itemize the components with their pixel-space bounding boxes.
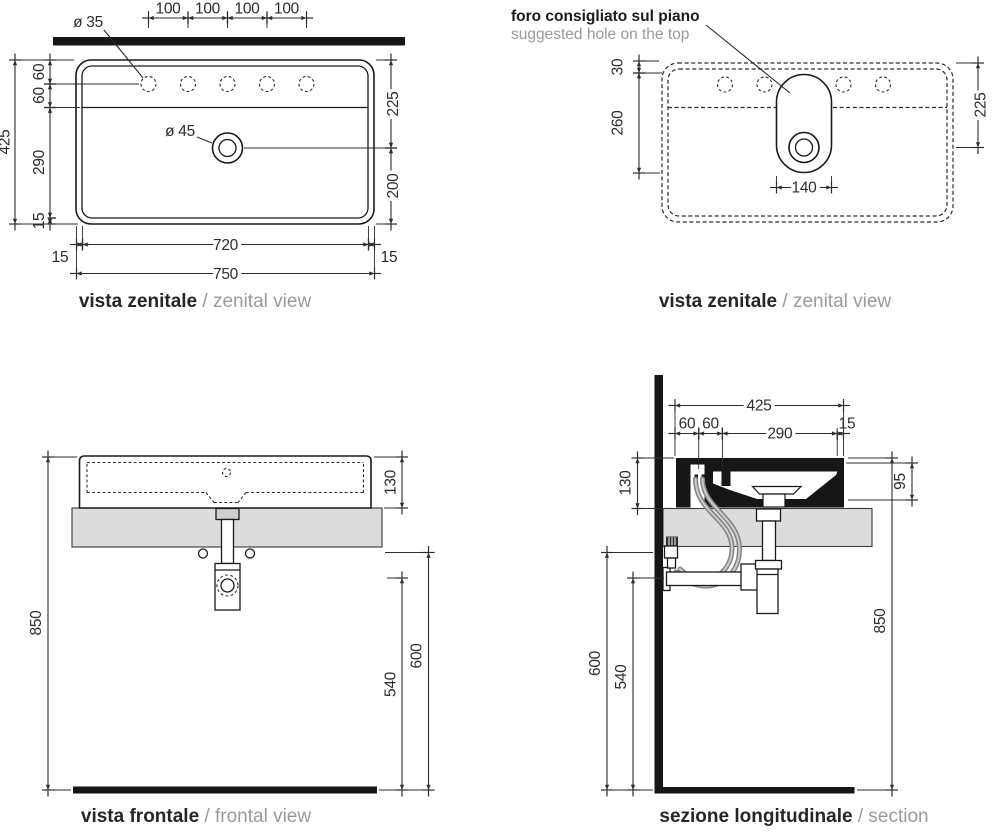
note-english: suggested hole on the top <box>511 26 689 43</box>
view-title-zenital-right: vista zenitale / zenital view <box>659 291 892 312</box>
dim-label-30: 30 <box>610 58 627 75</box>
label-drain-diameter: ø 45 <box>165 123 195 140</box>
view-title-section: sezione longitudinale / section <box>659 806 928 827</box>
valve-outlet <box>668 558 676 568</box>
fixing-bolt-left <box>199 549 208 558</box>
dim-left-chain: 30 260 <box>610 58 640 173</box>
view-title-zenital-left: vista zenitale / zenital view <box>79 291 312 312</box>
technical-drawing: ø 35 ø 45 100 100 100 100 425 60 60 290 … <box>0 0 992 836</box>
bottle-trap-body <box>757 569 778 614</box>
dim-right: 225 <box>973 63 990 148</box>
dim-label-15-left: 15 <box>52 249 69 266</box>
dim-label-95: 95 <box>892 473 909 490</box>
dim-bowl-depth-95: 95 <box>892 463 912 500</box>
dim-label-100-1: 100 <box>156 1 182 18</box>
dim-label-140: 140 <box>792 180 818 197</box>
angle-valve <box>665 537 679 569</box>
dim-label-425: 425 <box>0 130 14 155</box>
dim-basin-130: 130 <box>383 457 403 508</box>
floor-bar <box>655 787 855 794</box>
valve-body <box>665 546 678 558</box>
fixing-bolt-right <box>246 549 255 558</box>
drain-flange <box>216 509 239 520</box>
dim-bottom-widths: 720 750 15 15 <box>52 237 398 283</box>
dim-slot-width: 140 <box>777 180 832 197</box>
note-italian: foro consigliato sul piano <box>511 8 700 25</box>
view-zenital-left: ø 35 ø 45 100 100 100 100 425 60 60 290 … <box>0 1 405 313</box>
note-leader-line <box>706 25 790 93</box>
dim-label-540: 540 <box>383 671 400 697</box>
dim-label-540: 540 <box>613 664 630 690</box>
dim-drain-540: 540 <box>613 578 633 790</box>
wall-bar <box>655 375 664 794</box>
dim-top-425: 425 <box>675 398 844 415</box>
dim-label-750: 750 <box>213 266 239 283</box>
label-hole-diameter: ø 35 <box>73 14 103 31</box>
trap-outlet-circle <box>221 579 234 592</box>
drain-tailpipe <box>763 521 776 561</box>
dim-clearance-600: 600 <box>409 553 429 791</box>
view-zenital-right: foro consigliato sul piano suggested hol… <box>511 8 990 312</box>
view-title-frontal: vista frontale / frontal view <box>81 806 311 827</box>
dim-label-130: 130 <box>383 469 400 495</box>
dim-right-chain: 225 200 <box>385 60 402 224</box>
dim-clearance-600: 600 <box>587 553 607 791</box>
dim-label-60b: 60 <box>702 416 719 433</box>
drain-flange <box>757 509 781 521</box>
deck-step <box>722 472 731 487</box>
dim-label-60b: 60 <box>31 87 48 104</box>
faucet-hole-circle <box>718 77 733 92</box>
floor-bar <box>73 787 377 794</box>
drain-tailpipe <box>222 520 234 564</box>
dim-label-600: 600 <box>587 650 604 676</box>
dim-label-225: 225 <box>973 93 990 118</box>
dim-label-15: 15 <box>31 213 48 230</box>
popup-waste-cap <box>753 487 802 495</box>
dim-label-130: 130 <box>618 470 635 496</box>
dim-label-850: 850 <box>872 608 889 634</box>
dim-drain-540: 540 <box>383 578 403 790</box>
drain-inner-circle <box>796 139 813 156</box>
wall-bar <box>53 37 405 46</box>
dim-label-60a: 60 <box>679 416 696 433</box>
dim-label-100-4: 100 <box>274 1 300 18</box>
drain-hole <box>213 133 243 163</box>
dim-overall-depth: 425 <box>0 60 15 224</box>
view-frontal: 850 130 600 540 vista frontale / frontal… <box>28 456 435 827</box>
dim-height-850: 850 <box>28 457 48 790</box>
dim-label-225: 225 <box>385 92 402 117</box>
dim-label-15-right: 15 <box>381 249 398 266</box>
dim-label-290: 290 <box>767 426 793 443</box>
dim-label-200: 200 <box>385 173 402 199</box>
drain-hole <box>789 133 819 163</box>
dim-basin-130: 130 <box>618 458 638 509</box>
dim-label-60a: 60 <box>31 63 48 80</box>
wall-drain-pipe <box>667 572 742 586</box>
dim-top-chain: 60 60 290 15 <box>675 416 855 443</box>
dim-label-850: 850 <box>28 610 45 636</box>
basin-front-outline <box>80 456 372 508</box>
dim-label-15: 15 <box>839 416 856 433</box>
dim-label-290: 290 <box>31 149 48 175</box>
dim-label-100-2: 100 <box>195 1 221 18</box>
drain-inner-circle <box>219 140 236 157</box>
spec-sheet-page: ø 35 ø 45 100 100 100 100 425 60 60 290 … <box>0 0 992 836</box>
dim-label-425: 425 <box>747 398 772 415</box>
popup-waste-stem <box>763 494 785 507</box>
dim-height-850: 850 <box>872 458 892 790</box>
dim-left-chain: 60 60 290 15 <box>31 60 50 229</box>
dim-label-720: 720 <box>213 237 239 254</box>
dim-label-100-3: 100 <box>235 1 261 18</box>
dim-label-600: 600 <box>409 643 426 669</box>
faucet-hole-circle <box>876 77 891 92</box>
dim-label-260: 260 <box>610 110 627 136</box>
faucet-hole-circle <box>836 77 851 92</box>
trap-collar <box>756 561 782 570</box>
faucet-hole-circle <box>757 77 772 92</box>
view-section: 425 60 60 290 15 130 95 850 600 <box>587 375 929 827</box>
note-suggested-hole: foro consigliato sul piano suggested hol… <box>511 8 790 93</box>
